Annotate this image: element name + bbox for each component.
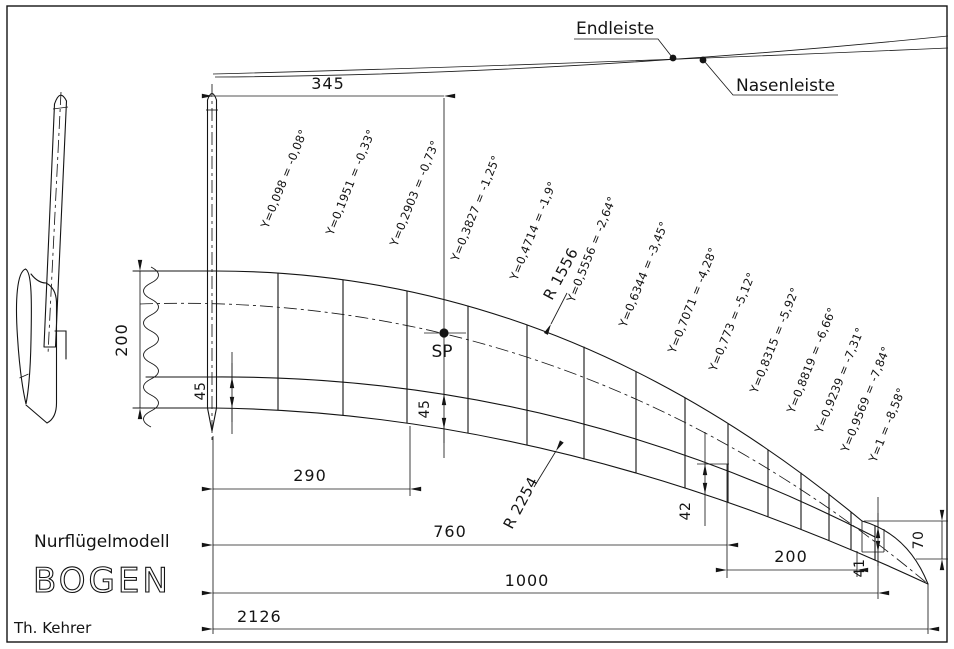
dimension-760: 760	[213, 436, 727, 634]
rib-label: Y=0,3827 = -1,25°	[447, 153, 503, 264]
drawing-sheet: Endleiste Nasenleiste	[0, 0, 954, 649]
rib-angle-labels: Y=0,098 = -0,08° Y=0,1951 = -0,33° Y=0,2…	[257, 127, 908, 465]
dim-value: 41	[852, 559, 868, 578]
cg-label: SP	[431, 342, 452, 362]
radius-lower-label: R 2254	[500, 474, 542, 532]
nasenleiste-label: Nasenleiste	[736, 76, 835, 96]
center-of-gravity: SP	[424, 328, 466, 362]
model-name-label: BOGEN	[33, 561, 171, 601]
rib-label: Y=0,7071 = -4,28°	[664, 245, 720, 356]
dim-value: 70	[911, 531, 927, 550]
side-view	[16, 92, 68, 423]
dim-value: 42	[678, 502, 694, 521]
dim-value: 200	[774, 547, 808, 566]
fin-centerline	[48, 92, 61, 354]
tip-arc	[862, 521, 928, 584]
fin-blade	[44, 101, 67, 347]
airfoil-profile	[16, 269, 31, 404]
dim-value: 45	[193, 382, 209, 401]
endleiste-leader	[574, 39, 672, 57]
author-label: Th. Kehrer	[13, 619, 92, 637]
dimension-290: 290	[213, 426, 410, 496]
dimension-42: 42	[678, 432, 729, 526]
dimension-41: 41	[852, 513, 878, 577]
endleiste-label: Endleiste	[576, 19, 654, 39]
endleiste-curve	[213, 48, 948, 74]
dim-value: 760	[433, 522, 467, 541]
wing-planform: SP	[133, 84, 928, 584]
dimension-45-root: 45	[193, 352, 232, 434]
dim-value: 2126	[237, 607, 282, 626]
rib-label: Y=0,2903 = -0,73°	[386, 138, 442, 249]
rib-label: Y=0,6344 = -3,45°	[615, 219, 671, 330]
dimension-345: 345 45	[213, 74, 444, 458]
dim-value: 345	[311, 74, 345, 93]
technical-drawing: Endleiste Nasenleiste	[0, 0, 954, 649]
saddle-curve	[31, 274, 46, 283]
rib-label: Y=0,773 = -5,12°	[705, 270, 758, 374]
dim-value: 1000	[505, 571, 550, 590]
model-type-label: Nurflügelmodell	[34, 532, 170, 552]
dim-value: 290	[293, 466, 327, 485]
dimension-200-tip: 200	[727, 547, 857, 577]
dimension-200-root: 200	[112, 271, 140, 408]
break-line	[144, 267, 159, 427]
rib-label: Y=0,8315 = -5,92°	[746, 285, 802, 396]
dimensions: 345 45 200 45 290 760	[112, 74, 948, 634]
dimension-2126: 2126	[213, 584, 928, 634]
rib-label: Y=0,1951 = -0,33°	[322, 127, 378, 238]
strip-curve	[213, 377, 875, 537]
dim-value: 200	[112, 323, 131, 357]
rib-label: Y=0,098 = -0,08°	[257, 127, 310, 231]
title-block: Nurflügelmodell BOGEN Th. Kehrer	[13, 532, 171, 637]
rib-label: Y=0,4714 = -1,9°	[506, 179, 559, 283]
dim-value: 45	[417, 400, 433, 419]
